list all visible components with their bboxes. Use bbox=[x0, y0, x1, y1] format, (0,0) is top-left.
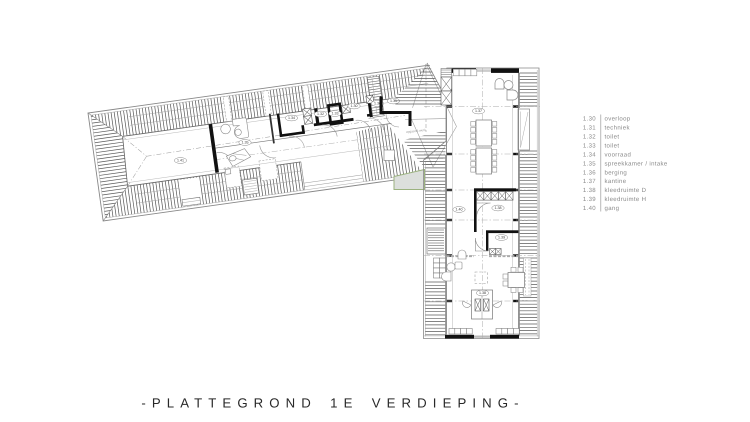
svg-text:-PLATTEGROND 1E VERDIEPING-: -PLATTEGROND 1E VERDIEPING- bbox=[141, 395, 524, 410]
svg-text:toilet: toilet bbox=[605, 134, 620, 141]
svg-text:kleedruimte H: kleedruimte H bbox=[605, 196, 647, 203]
svg-text:1.31: 1.31 bbox=[583, 125, 596, 132]
svg-text:berging: berging bbox=[605, 169, 628, 176]
svg-text:techniek: techniek bbox=[605, 125, 631, 132]
svg-text:1.38: 1.38 bbox=[479, 291, 486, 295]
svg-text:1.40: 1.40 bbox=[456, 208, 463, 212]
svg-text:1.37: 1.37 bbox=[583, 178, 596, 185]
svg-text:1.34: 1.34 bbox=[583, 151, 596, 158]
svg-text:1.32: 1.32 bbox=[317, 112, 324, 116]
svg-text:1.30: 1.30 bbox=[583, 116, 596, 123]
svg-text:voorraad: voorraad bbox=[605, 151, 632, 158]
svg-text:1.35: 1.35 bbox=[242, 141, 249, 145]
svg-text:1.35: 1.35 bbox=[583, 160, 596, 167]
svg-text:1.36: 1.36 bbox=[583, 169, 596, 176]
svg-text:1.30: 1.30 bbox=[351, 104, 358, 108]
svg-text:overloop: overloop bbox=[605, 116, 631, 123]
svg-text:1.34: 1.34 bbox=[288, 116, 295, 120]
svg-text:1.38: 1.38 bbox=[583, 187, 596, 194]
svg-text:1.40: 1.40 bbox=[583, 205, 596, 212]
svg-text:1.39: 1.39 bbox=[498, 236, 505, 240]
svg-text:1.41: 1.41 bbox=[177, 159, 184, 163]
svg-text:kleedruimte D: kleedruimte D bbox=[605, 187, 647, 194]
svg-text:kantine: kantine bbox=[605, 178, 627, 185]
svg-text:1.32: 1.32 bbox=[583, 134, 596, 141]
svg-text:1.33: 1.33 bbox=[332, 112, 339, 116]
svg-text:spreekkamer / intake: spreekkamer / intake bbox=[605, 160, 668, 167]
svg-text:1.33: 1.33 bbox=[583, 142, 596, 149]
svg-text:toilet: toilet bbox=[605, 142, 620, 149]
svg-text:gang: gang bbox=[605, 206, 620, 212]
svg-text:1.31: 1.31 bbox=[390, 99, 397, 103]
svg-text:1.37: 1.37 bbox=[475, 109, 482, 113]
svg-text:1.38: 1.38 bbox=[495, 206, 502, 210]
svg-text:1.39: 1.39 bbox=[583, 196, 596, 203]
